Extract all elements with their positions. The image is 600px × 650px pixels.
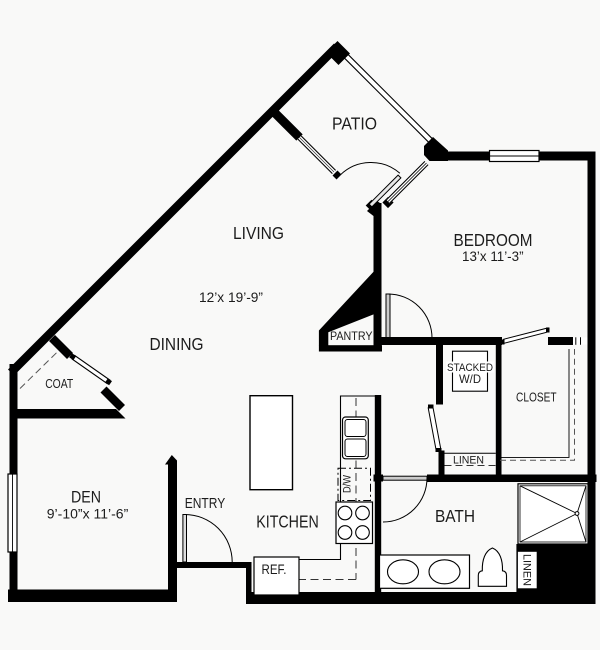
svg-text:BEDROOM: BEDROOM — [454, 230, 533, 250]
svg-text:ENTRY: ENTRY — [185, 496, 226, 512]
svg-text:W/D: W/D — [459, 372, 481, 386]
svg-text:REF.: REF. — [262, 562, 287, 577]
svg-text:13’x 11’-3”: 13’x 11’-3” — [462, 248, 524, 264]
svg-text:CLOSET: CLOSET — [516, 390, 557, 405]
svg-text:KITCHEN: KITCHEN — [256, 512, 319, 532]
svg-text:9’-10”x 11’-6”: 9’-10”x 11’-6” — [47, 506, 129, 522]
svg-text:COAT: COAT — [45, 376, 73, 391]
svg-text:LINEN: LINEN — [521, 554, 533, 586]
svg-text:PANTRY: PANTRY — [330, 329, 373, 343]
svg-text:PATIO: PATIO — [332, 114, 377, 134]
svg-text:BATH: BATH — [435, 506, 475, 526]
svg-text:DINING: DINING — [150, 334, 204, 354]
svg-text:12’x 19’-9”: 12’x 19’-9” — [199, 290, 263, 306]
svg-text:LIVING: LIVING — [233, 223, 284, 243]
svg-text:LINEN: LINEN — [453, 454, 484, 466]
svg-text:DEN: DEN — [71, 488, 101, 507]
svg-text:D/W: D/W — [342, 474, 354, 493]
